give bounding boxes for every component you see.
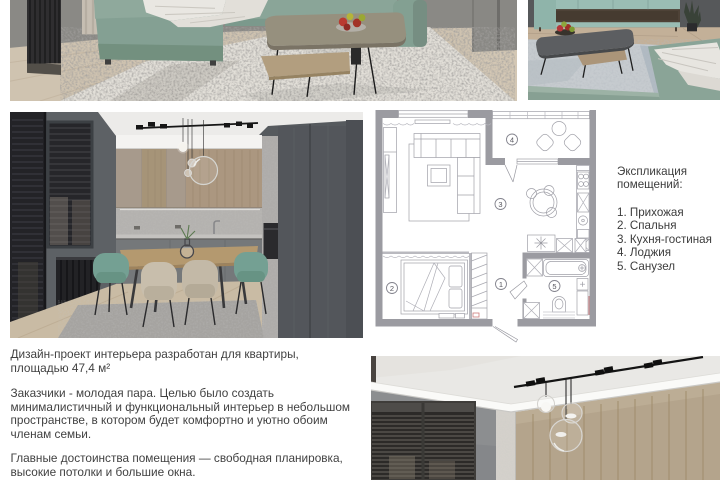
svg-text:5: 5 <box>552 282 556 291</box>
svg-text:3: 3 <box>498 200 502 209</box>
svg-text:2: 2 <box>390 284 394 293</box>
svg-text:1: 1 <box>499 280 503 289</box>
svg-text:4: 4 <box>510 136 514 145</box>
